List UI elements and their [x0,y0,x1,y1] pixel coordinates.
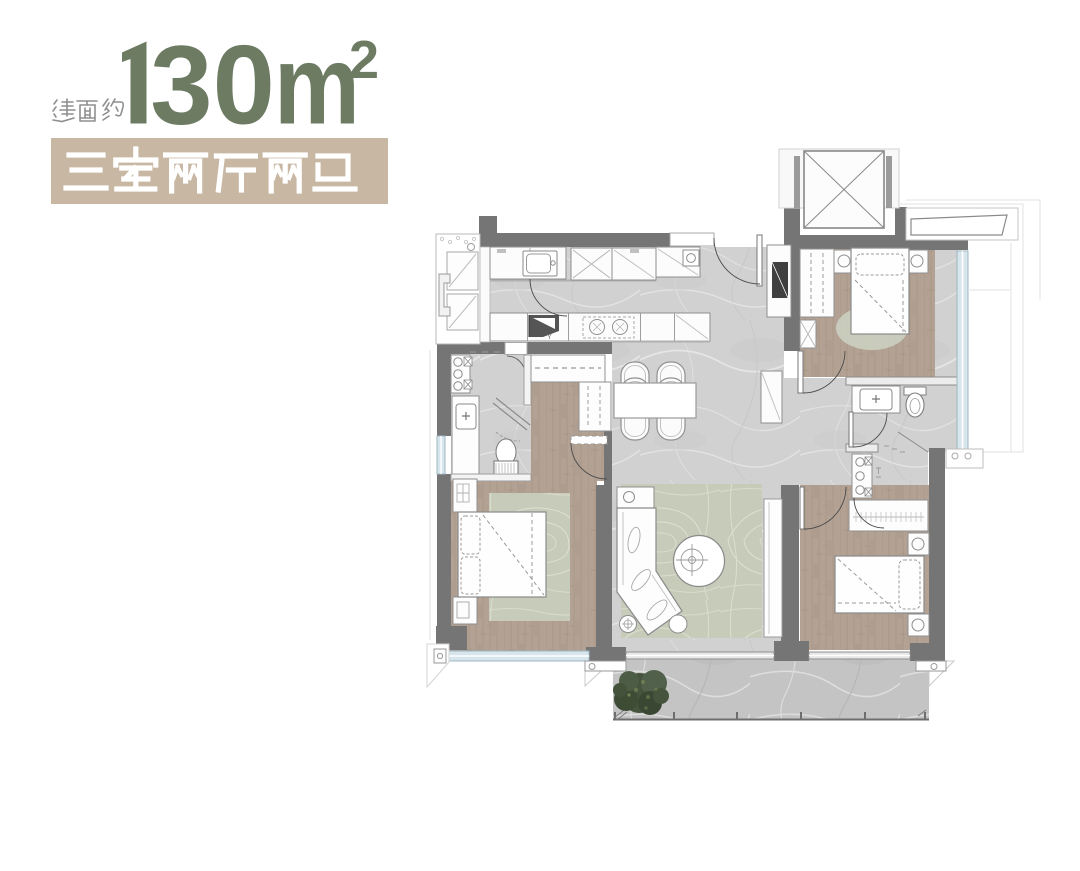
svg-text:Y: Y [547,334,552,341]
svg-text:m: m [274,23,360,148]
svg-text:2: 2 [349,30,379,90]
svg-text:30: 30 [150,23,275,148]
